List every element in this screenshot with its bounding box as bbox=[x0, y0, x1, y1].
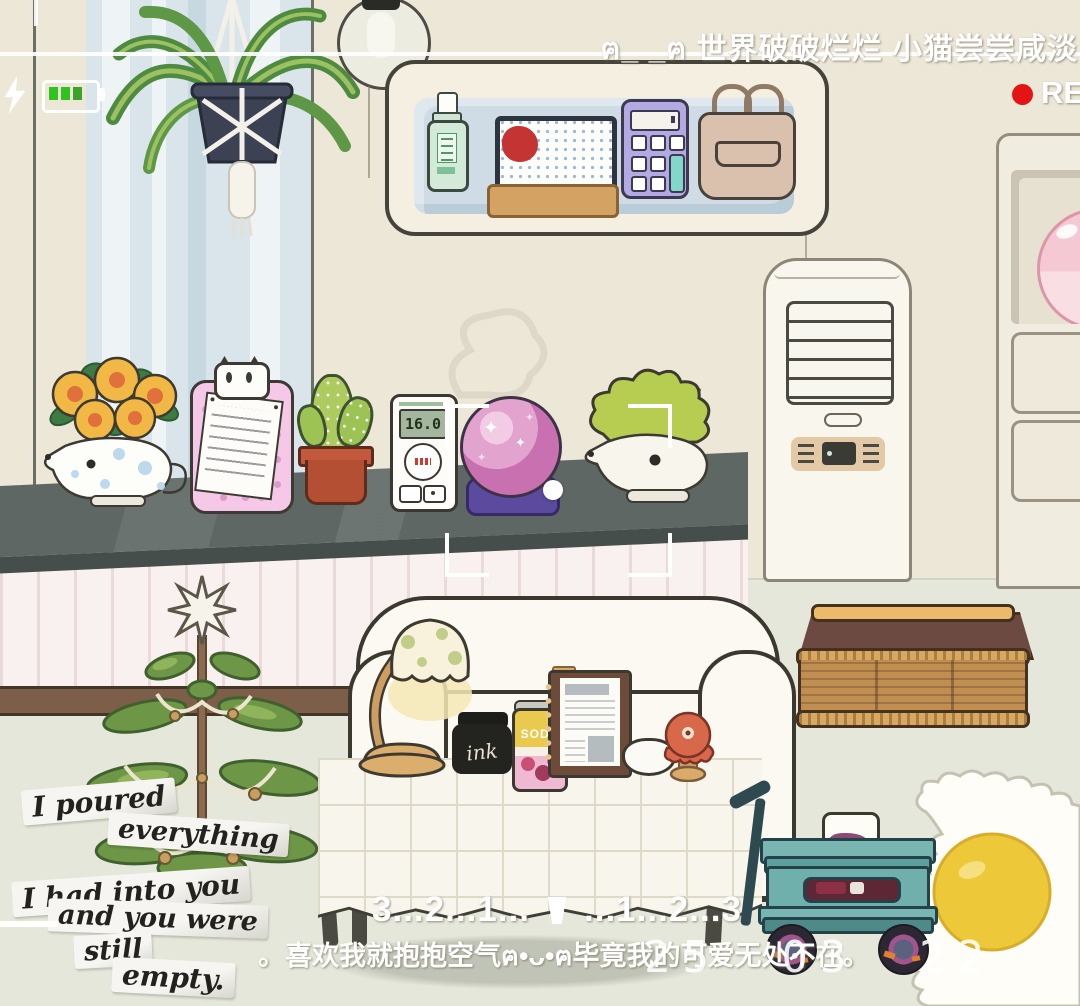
status-watermark: ฅ_ _ฅ 世界破破烂烂 小猫尝尝咸淡 bbox=[560, 24, 1078, 73]
basket-rim bbox=[811, 604, 1015, 622]
rec-dot-icon bbox=[1012, 84, 1033, 105]
teacup-body bbox=[45, 438, 171, 498]
potted-cactus[interactable] bbox=[296, 370, 372, 506]
note-scribbles bbox=[204, 405, 272, 484]
countdown-left: 3...2...1... bbox=[372, 890, 530, 930]
sparkle-icon: ✦ bbox=[477, 451, 486, 464]
note-pin bbox=[274, 405, 278, 409]
calculator-key bbox=[631, 156, 647, 172]
cabinet-drawer[interactable] bbox=[1011, 420, 1080, 502]
planter-eye bbox=[650, 455, 661, 466]
tree-star bbox=[168, 576, 236, 644]
ac-buttons-right bbox=[863, 444, 879, 464]
spray-band bbox=[437, 167, 455, 174]
ac-display-dot bbox=[827, 451, 832, 456]
figurine-base bbox=[671, 767, 705, 781]
notebook-page bbox=[560, 678, 620, 766]
ink-label: ink bbox=[451, 737, 513, 767]
air-conditioner[interactable] bbox=[763, 258, 912, 582]
thermostat-top-strip bbox=[399, 402, 443, 406]
calculator-tall-key bbox=[669, 154, 685, 193]
teacup-foot bbox=[91, 496, 145, 506]
basket-weave bbox=[798, 660, 1028, 712]
clipboard-note bbox=[194, 392, 284, 501]
date-stamp: 25 03 22 bbox=[644, 932, 996, 983]
cabinet-compartment bbox=[1011, 170, 1080, 324]
cutout-red-cup bbox=[816, 882, 846, 894]
macrame-tassel bbox=[229, 162, 255, 218]
cat-eye-icon bbox=[246, 372, 252, 383]
calculator-key bbox=[631, 135, 647, 151]
page-lines bbox=[565, 740, 585, 762]
cat-clip bbox=[214, 362, 266, 398]
calculator-key bbox=[650, 156, 666, 172]
cat-clip-head bbox=[214, 362, 270, 400]
spray-body bbox=[427, 120, 469, 192]
page-lines bbox=[565, 700, 615, 734]
spiral-rings bbox=[544, 680, 553, 764]
thermostat-button[interactable] bbox=[399, 485, 422, 503]
battery-bar bbox=[49, 87, 58, 100]
thermostat-red-marks bbox=[415, 458, 431, 465]
spray-label bbox=[437, 133, 457, 163]
calculator-key bbox=[650, 135, 666, 151]
calculator-display bbox=[630, 110, 680, 131]
right-cabinet[interactable] bbox=[996, 133, 1080, 589]
battery-nub bbox=[99, 88, 105, 101]
page-block bbox=[588, 736, 614, 762]
pot-body bbox=[305, 460, 367, 505]
focus-bracket-top-left bbox=[445, 404, 489, 448]
hedgehog-eye bbox=[87, 460, 96, 469]
spray-bottle[interactable] bbox=[426, 92, 466, 190]
hedgehog-teacup-flowers[interactable] bbox=[35, 352, 195, 508]
rec-label: RE bbox=[1041, 75, 1080, 111]
berry-icon bbox=[521, 757, 535, 771]
battery-bar bbox=[61, 87, 70, 100]
ink-jar[interactable]: ink bbox=[452, 712, 514, 776]
thermostat-display: 16.0 bbox=[399, 409, 447, 439]
yellow-flowers bbox=[53, 358, 176, 440]
basket-braid-bottom bbox=[796, 710, 1030, 728]
lamp-shade bbox=[392, 620, 469, 681]
ac-buttons-left bbox=[798, 444, 814, 464]
handbag-body bbox=[698, 112, 796, 200]
thermostat-button[interactable] bbox=[423, 485, 446, 503]
planter-foot bbox=[627, 490, 689, 502]
handbag-pocket bbox=[715, 141, 781, 167]
calculator[interactable] bbox=[621, 99, 689, 199]
sparkle-icon: ✦ bbox=[525, 411, 534, 424]
steam-doodle bbox=[430, 295, 560, 405]
calculator-key bbox=[631, 176, 647, 192]
focus-bracket-bottom-left bbox=[445, 533, 489, 577]
wagon-cutout bbox=[803, 877, 901, 903]
ac-display bbox=[822, 442, 856, 465]
cursor-dot[interactable] bbox=[543, 480, 563, 500]
ac-handle bbox=[824, 413, 862, 427]
octopus-figurine[interactable] bbox=[658, 708, 718, 782]
pink-ball[interactable] bbox=[1037, 208, 1080, 324]
handbag[interactable] bbox=[698, 84, 794, 196]
countdown-right: ...1...2...3 bbox=[584, 890, 742, 930]
sparkle-icon: ✦ bbox=[515, 435, 526, 451]
thermostat-dial-button[interactable] bbox=[404, 443, 442, 481]
wicker-basket[interactable] bbox=[795, 600, 1031, 726]
ball-highlight bbox=[1054, 222, 1079, 242]
planter-nose bbox=[588, 451, 594, 457]
game-room-scene: 16.0 ✦ ✦ ✦ ✦ bbox=[0, 0, 1080, 1006]
calendar-picture bbox=[502, 126, 538, 162]
hanging-plant[interactable] bbox=[105, 0, 360, 241]
desk-calendar[interactable] bbox=[487, 116, 613, 212]
bulb-cord bbox=[368, 86, 370, 178]
focus-bracket-top-right bbox=[628, 404, 672, 448]
viewfinder-bottom-left-line bbox=[0, 921, 58, 927]
charging-bolt-icon bbox=[2, 76, 28, 114]
thermostat-button-dot bbox=[431, 491, 435, 495]
cat-eye-icon bbox=[226, 372, 232, 383]
ink-body: ink bbox=[452, 724, 512, 774]
notebook[interactable] bbox=[548, 670, 626, 774]
hedgehog-nose bbox=[45, 454, 51, 460]
calculator-battery-dot bbox=[671, 116, 675, 123]
battery-icon bbox=[42, 80, 100, 113]
calendar-stand bbox=[487, 184, 619, 218]
battery-bar bbox=[73, 87, 82, 100]
ac-top-seam bbox=[774, 267, 900, 279]
cabinet-drawer[interactable] bbox=[1011, 332, 1080, 414]
torn-note[interactable]: empty. bbox=[111, 957, 235, 998]
ac-control-panel[interactable] bbox=[791, 437, 885, 471]
cutout-white-glint bbox=[850, 882, 864, 894]
ac-vent-grille bbox=[786, 301, 894, 405]
bulb-socket-icon bbox=[362, 0, 400, 10]
focus-bracket-bottom-right bbox=[628, 533, 672, 577]
viewfinder-corner-tick bbox=[34, 0, 38, 26]
page-block bbox=[565, 684, 609, 695]
calculator-key bbox=[669, 135, 685, 151]
calculator-key bbox=[650, 176, 666, 192]
